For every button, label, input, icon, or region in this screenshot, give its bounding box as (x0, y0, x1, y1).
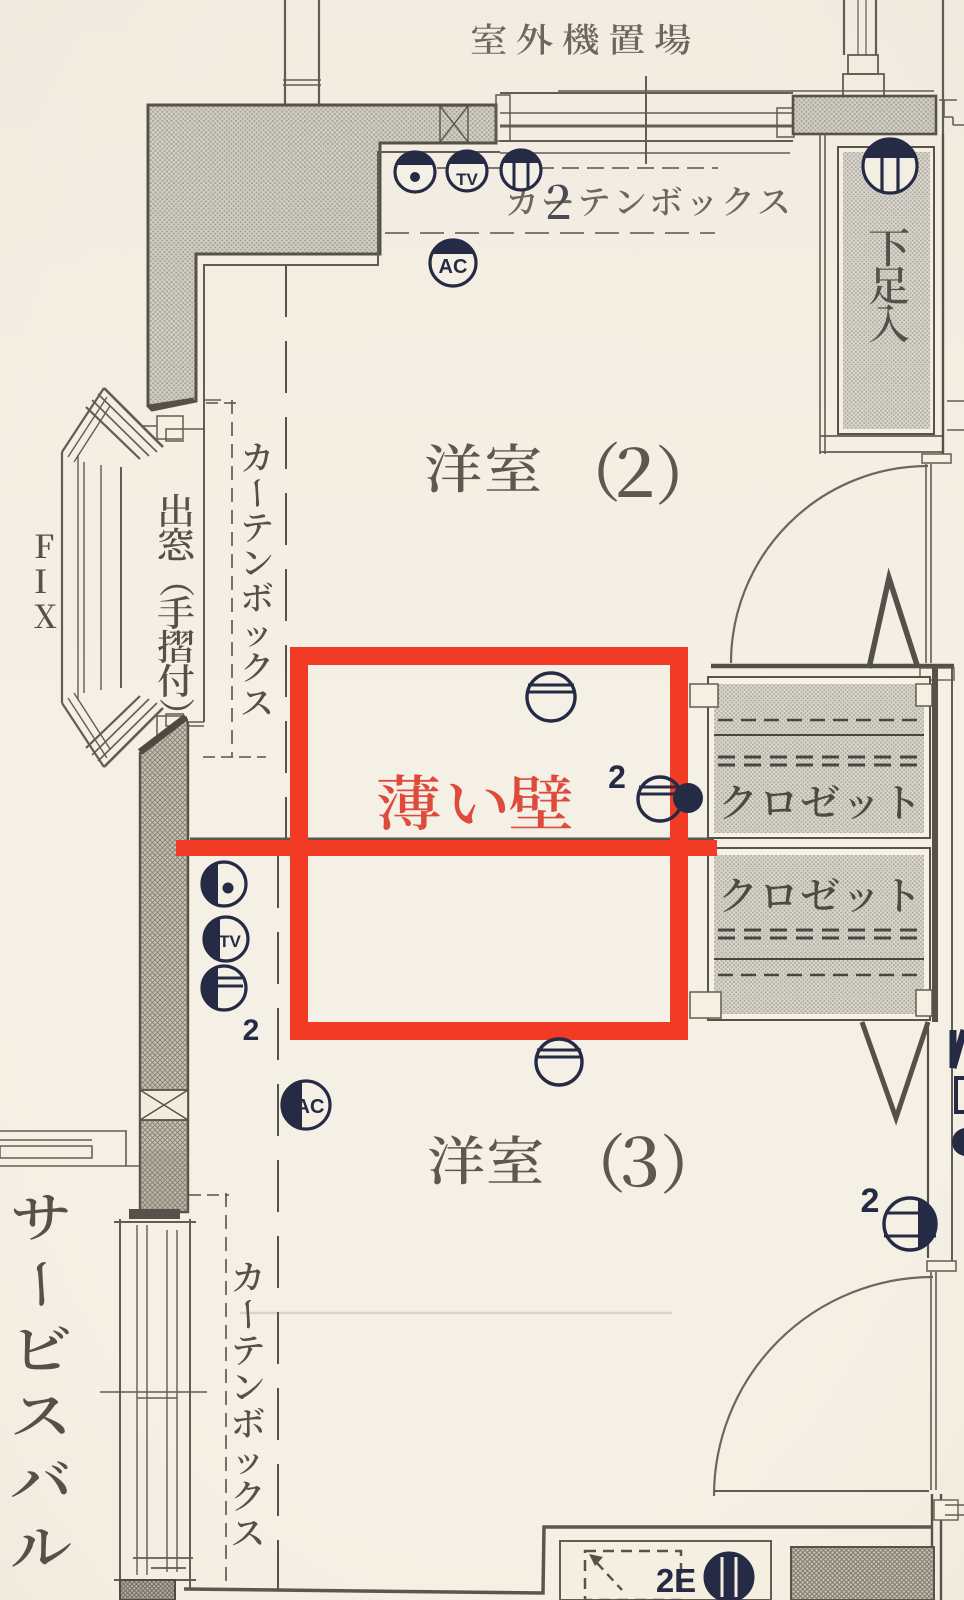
svg-text:2: 2 (861, 1182, 880, 1220)
svg-text:AC: AC (296, 1096, 325, 1118)
svg-text:2: 2 (608, 759, 626, 795)
svg-text:TV: TV (456, 170, 478, 189)
svg-text:AC: AC (439, 256, 468, 278)
svg-text:2E: 2E (656, 1562, 696, 1599)
svg-text:TV: TV (219, 932, 241, 951)
svg-text:2: 2 (243, 1014, 260, 1047)
